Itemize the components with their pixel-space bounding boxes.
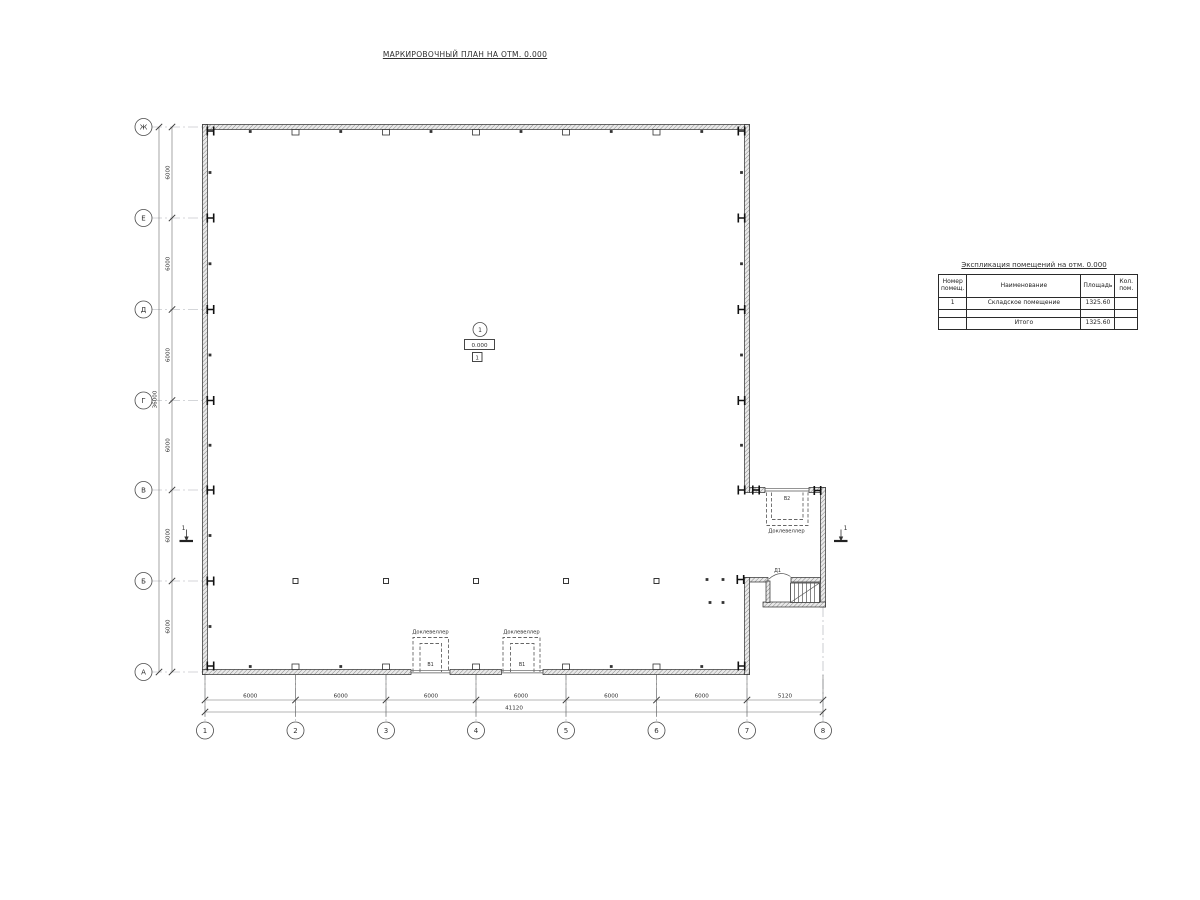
stairs xyxy=(791,583,820,603)
section-mark-right: 1 xyxy=(834,525,848,542)
dim-bottom-6: 6000 xyxy=(695,694,710,700)
dim-left-2: 6000 xyxy=(166,256,172,271)
dimension-texts: 6000 6000 6000 6000 6000 6000 36000 6000… xyxy=(153,165,793,712)
dim-bottom-2: 6000 xyxy=(334,694,349,700)
walls xyxy=(203,125,826,675)
floor-plan-drawing: 6000 6000 6000 6000 6000 6000 36000 6000… xyxy=(0,0,1200,900)
dim-left-6: 6000 xyxy=(166,619,172,634)
cell-room-count xyxy=(1115,298,1138,310)
axis-row-v: В xyxy=(141,487,146,495)
axis-col-7: 7 xyxy=(745,727,749,735)
dim-bottom-1: 6000 xyxy=(243,694,258,700)
cell-room-name: Складское помещение xyxy=(967,298,1081,310)
axis-row-b: Б xyxy=(141,578,146,586)
explication-title: Экспликация помещений на отм. 0.000 xyxy=(930,261,1138,269)
explication-row-1: 1 Складское помещение 1325.60 xyxy=(939,298,1138,310)
dim-left-1: 6000 xyxy=(166,165,172,180)
grid-axis-lines xyxy=(152,127,823,722)
dim-bottom-5: 6000 xyxy=(604,694,619,700)
explication-table: Номер помещ. Наименование Площадь Кол. п… xyxy=(938,274,1138,330)
interior-columns xyxy=(293,579,659,584)
axis-row-d: Д xyxy=(141,306,147,314)
door-swing-arc xyxy=(769,574,791,579)
dock-leveler-2: Доклевеллер В1 xyxy=(503,630,540,673)
cell-room-area: 1325.60 xyxy=(1081,298,1115,310)
room-finish-tag: 1 xyxy=(475,356,479,362)
gate-b1-tag: В1 xyxy=(427,662,433,668)
door-d1-tag: Д1 xyxy=(774,568,781,574)
dim-left-total: 36000 xyxy=(153,390,159,408)
cell-total-area: 1325.60 xyxy=(1081,318,1115,330)
gate-b1-tag-2: В1 xyxy=(519,662,525,668)
axis-col-2: 2 xyxy=(293,727,297,735)
gate-b2-tag: В2 xyxy=(784,496,790,502)
room-number: 1 xyxy=(478,327,482,334)
cell-total-label: Итого xyxy=(967,318,1081,330)
dim-left-4: 6000 xyxy=(166,438,172,453)
axis-row-a: А xyxy=(141,669,146,677)
dim-bottom-7: 5120 xyxy=(778,694,793,700)
section-mark-left: 1 xyxy=(180,525,194,542)
room-elevation: 0.000 xyxy=(471,343,487,349)
wall-posts xyxy=(209,130,743,670)
cell-room-number: 1 xyxy=(939,298,967,310)
col-header-count: Кол. пом. xyxy=(1115,275,1138,298)
axis-row-zh: Ж xyxy=(140,124,148,132)
dim-bottom-4: 6000 xyxy=(514,694,529,700)
explication-header-row: Номер помещ. Наименование Площадь Кол. п… xyxy=(939,275,1138,298)
dim-bottom-3: 6000 xyxy=(424,694,439,700)
dock-leveler-3-label: Доклевеллер xyxy=(768,529,805,535)
col-header-number: Номер помещ. xyxy=(939,275,967,298)
dimension-lines xyxy=(156,124,826,717)
drawing-sheet: МАРКИРОВОЧНЫЙ ПЛАН НА ОТМ. 0.000 xyxy=(0,0,1200,900)
dock-leveler-2-label: Доклевеллер xyxy=(503,630,540,636)
axis-bubbles: Ж Е Д Г В Б А 1 2 3 4 5 6 7 8 xyxy=(135,119,832,740)
room-explication: Экспликация помещений на отм. 0.000 Номе… xyxy=(930,261,1138,330)
col-header-area: Площадь xyxy=(1081,275,1115,298)
axis-col-8: 8 xyxy=(821,727,825,735)
section-mark-left-label: 1 xyxy=(182,525,186,532)
axis-row-g: Г xyxy=(141,397,145,405)
section-mark-right-label: 1 xyxy=(844,525,848,532)
axis-row-e: Е xyxy=(141,215,145,223)
dim-bottom-total: 41120 xyxy=(505,706,523,712)
axis-col-5: 5 xyxy=(564,727,568,735)
axis-col-1: 1 xyxy=(203,727,207,735)
dock-leveler-1-label: Доклевеллер xyxy=(412,630,449,636)
steel-columns xyxy=(207,127,820,671)
explication-empty-row xyxy=(939,310,1138,318)
explication-total-row: Итого 1325.60 xyxy=(939,318,1138,330)
dim-left-3: 6000 xyxy=(166,347,172,362)
dock-leveler-3: В2 Доклевеллер xyxy=(767,493,809,535)
axis-col-3: 3 xyxy=(384,727,388,735)
col-header-name: Наименование xyxy=(967,275,1081,298)
axis-col-6: 6 xyxy=(654,727,659,735)
dim-left-5: 6000 xyxy=(166,528,172,543)
dock-leveler-1: Доклевеллер В1 xyxy=(412,630,449,673)
axis-col-4: 4 xyxy=(474,727,479,735)
room-tag: 1 0.000 1 xyxy=(465,323,495,362)
explication-title-text: Экспликация помещений на отм. 0.000 xyxy=(961,261,1106,269)
